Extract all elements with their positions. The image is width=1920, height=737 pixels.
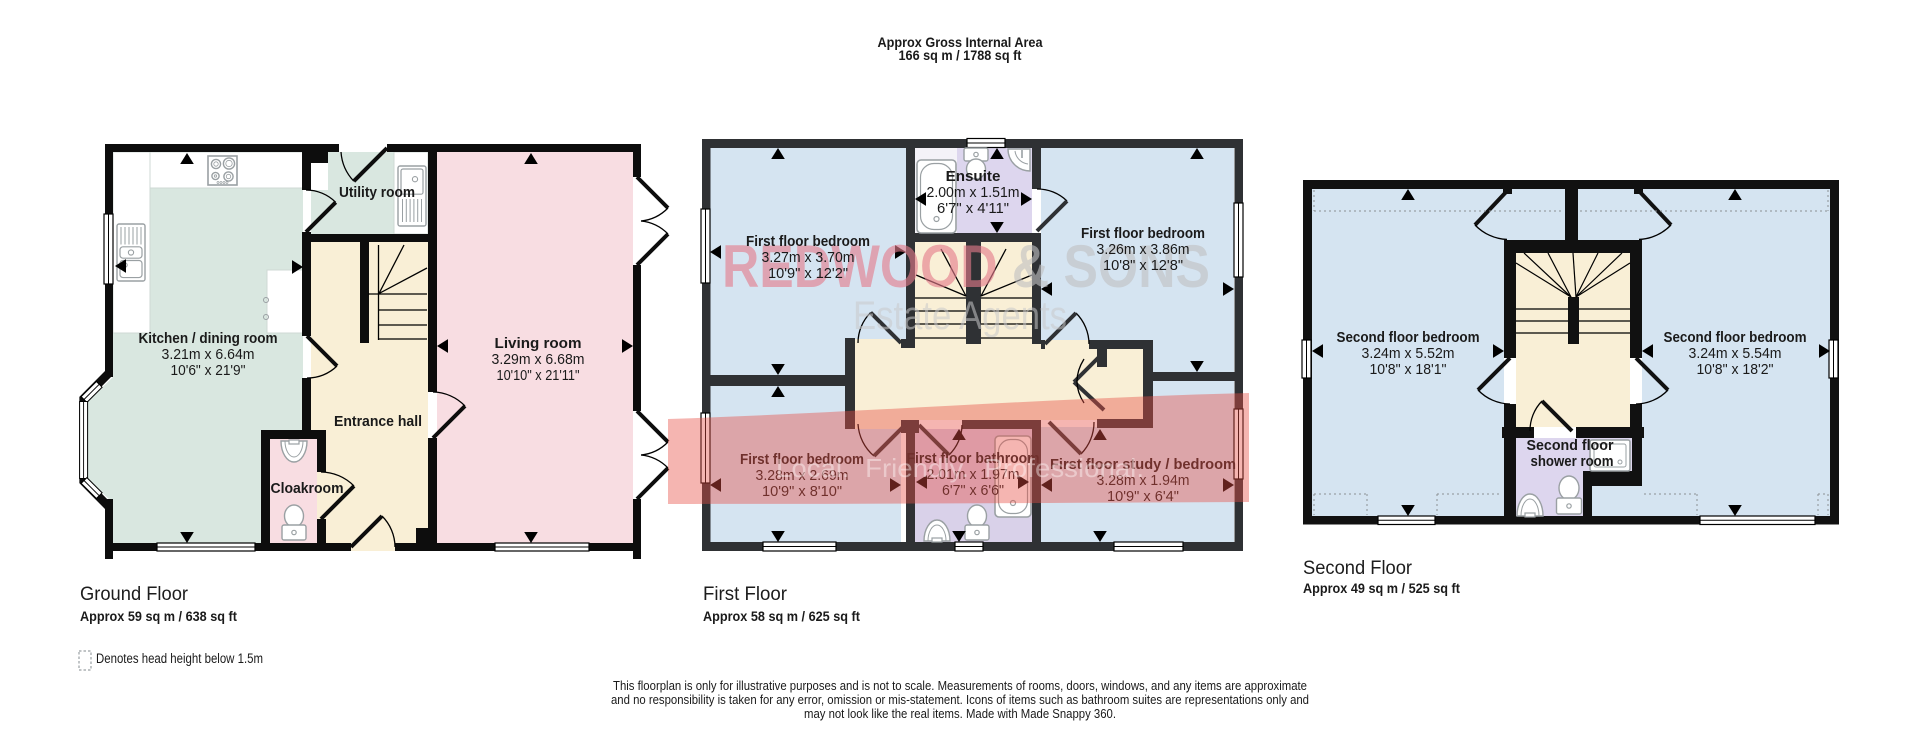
svg-text:Second floor: Second floor — [1527, 437, 1614, 454]
svg-text:Entrance hall: Entrance hall — [334, 413, 422, 430]
svg-text:First Floor: First Floor — [703, 583, 787, 605]
svg-text:Second floor bedroom: Second floor bedroom — [1664, 329, 1807, 346]
svg-text:may not look like the real ite: may not look like the real items. Made w… — [804, 706, 1116, 721]
svg-text:This floorplan is only for ill: This floorplan is only for illustrative … — [613, 678, 1307, 693]
svg-text:10'8" x 18'2": 10'8" x 18'2" — [1697, 361, 1774, 378]
svg-text:2.00m x 1.51m: 2.00m x 1.51m — [927, 184, 1020, 201]
svg-text:3.24m x 5.52m: 3.24m x 5.52m — [1362, 345, 1455, 362]
svg-text:3.27m x 3.70m: 3.27m x 3.70m — [762, 249, 855, 266]
svg-text:Ensuite: Ensuite — [946, 168, 1001, 185]
svg-text:10'10" x 21'11": 10'10" x 21'11" — [497, 367, 580, 384]
svg-text:Approx 58 sq m / 625 sq ft: Approx 58 sq m / 625 sq ft — [703, 609, 860, 624]
svg-text:10'6" x 21'9": 10'6" x 21'9" — [171, 362, 246, 379]
svg-text:Second Floor: Second Floor — [1303, 557, 1412, 579]
svg-text:Estate Agents: Estate Agents — [853, 294, 1067, 338]
svg-text:and no responsibility is taken: and no responsibility is taken for any e… — [611, 692, 1309, 707]
svg-text:Second floor bedroom: Second floor bedroom — [1337, 329, 1480, 346]
svg-text:166 sq m / 1788 sq ft: 166 sq m / 1788 sq ft — [899, 48, 1022, 63]
svg-text:10'8" x 18'1": 10'8" x 18'1" — [1370, 361, 1447, 378]
svg-text:Living room: Living room — [495, 335, 582, 352]
svg-text:10'9" x 12'2": 10'9" x 12'2" — [768, 265, 848, 282]
svg-text:6'7" x 4'11": 6'7" x 4'11" — [937, 200, 1009, 217]
svg-text:3.26m x 3.86m: 3.26m x 3.86m — [1097, 241, 1190, 258]
svg-text:Approx 49 sq m / 525 sq ft: Approx 49 sq m / 525 sq ft — [1303, 581, 1460, 596]
svg-text:shower room: shower room — [1531, 453, 1614, 470]
svg-text:3.29m x 6.68m: 3.29m x 6.68m — [492, 351, 585, 368]
svg-text:Local. Friendly. Professiona: Local. Friendly. Professional. — [776, 453, 1144, 483]
svg-text:Utility room: Utility room — [339, 184, 415, 201]
svg-text:Approx 59 sq m / 638 sq ft: Approx 59 sq m / 638 sq ft — [80, 609, 237, 624]
svg-text:Kitchen / dining room: Kitchen / dining room — [139, 330, 278, 347]
svg-text:3.24m x 5.54m: 3.24m x 5.54m — [1689, 345, 1782, 362]
svg-text:10'8" x 12'8": 10'8" x 12'8" — [1103, 257, 1183, 274]
svg-text:Denotes head height below 1.5m: Denotes head height below 1.5m — [96, 651, 263, 666]
svg-text:First floor bedroom: First floor bedroom — [746, 233, 870, 250]
svg-text:Ground Floor: Ground Floor — [80, 583, 188, 605]
svg-text:First floor bedroom: First floor bedroom — [1081, 225, 1205, 242]
svg-text:3.21m x 6.64m: 3.21m x 6.64m — [162, 346, 255, 363]
svg-text:Cloakroom: Cloakroom — [271, 480, 344, 497]
